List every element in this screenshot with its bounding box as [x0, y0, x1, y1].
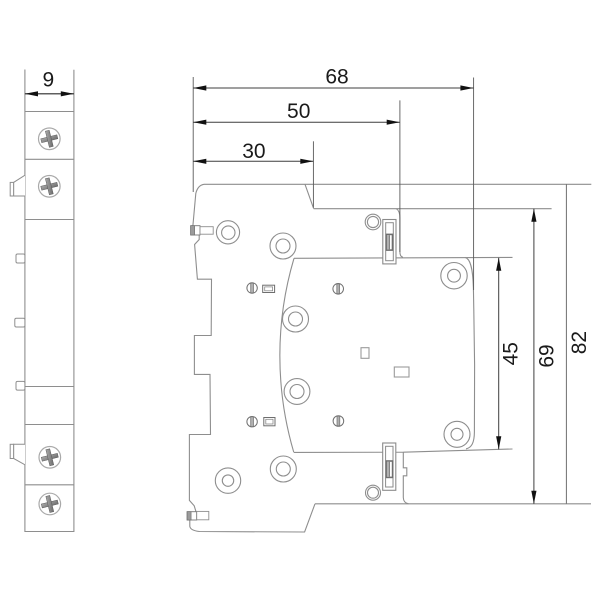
svg-text:68: 68 — [325, 66, 348, 89]
svg-text:9: 9 — [42, 69, 54, 92]
svg-text:30: 30 — [242, 140, 265, 163]
svg-text:45: 45 — [499, 342, 522, 365]
svg-text:69: 69 — [535, 344, 558, 367]
svg-text:82: 82 — [568, 331, 591, 354]
svg-text:50: 50 — [287, 100, 310, 123]
